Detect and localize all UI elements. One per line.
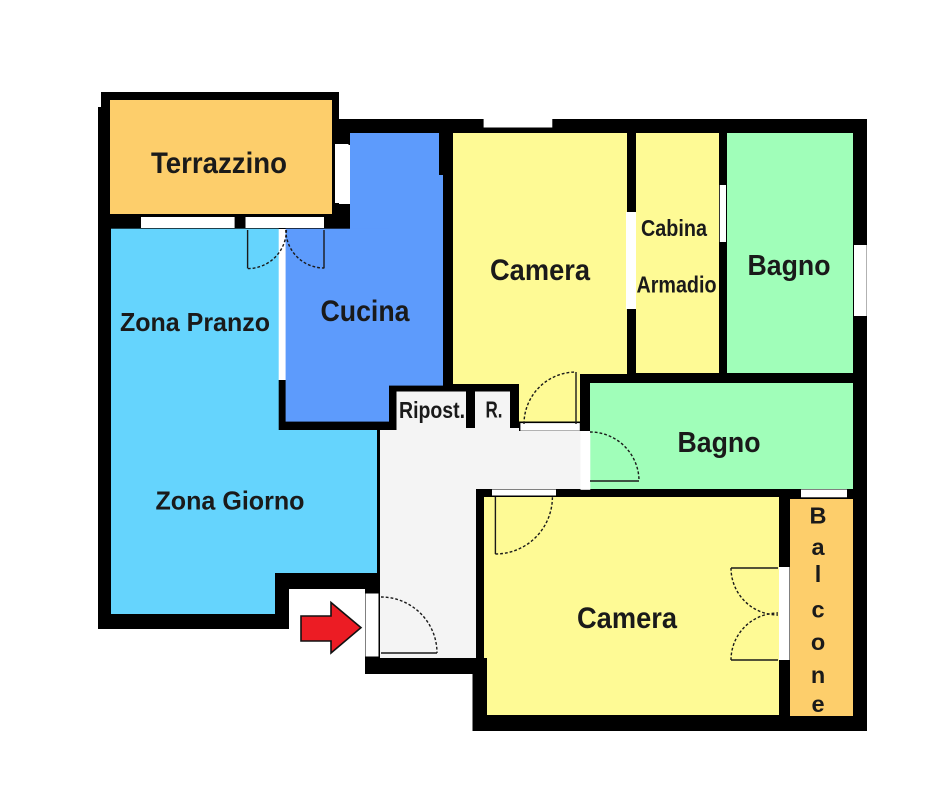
svg-text:Zona Pranzo: Zona Pranzo (120, 307, 270, 337)
svg-text:Cabina: Cabina (641, 215, 708, 241)
svg-text:Cucina: Cucina (321, 295, 410, 328)
svg-text:Camera: Camera (490, 254, 590, 287)
svg-text:B: B (810, 503, 827, 529)
svg-text:l: l (815, 561, 822, 587)
svg-text:c: c (811, 597, 824, 623)
svg-text:Bagno: Bagno (678, 427, 761, 459)
svg-text:e: e (811, 691, 824, 717)
svg-text:n: n (811, 662, 825, 688)
svg-text:Ripost.: Ripost. (399, 397, 465, 423)
svg-text:Camera: Camera (577, 602, 677, 635)
svg-text:R.: R. (486, 397, 503, 423)
svg-text:Bagno: Bagno (748, 250, 831, 282)
svg-text:o: o (811, 629, 825, 655)
svg-text:a: a (811, 534, 825, 560)
svg-text:Terrazzino: Terrazzino (151, 147, 287, 180)
svg-text:Zona Giorno: Zona Giorno (156, 486, 305, 516)
svg-text:Armadio: Armadio (637, 272, 717, 298)
